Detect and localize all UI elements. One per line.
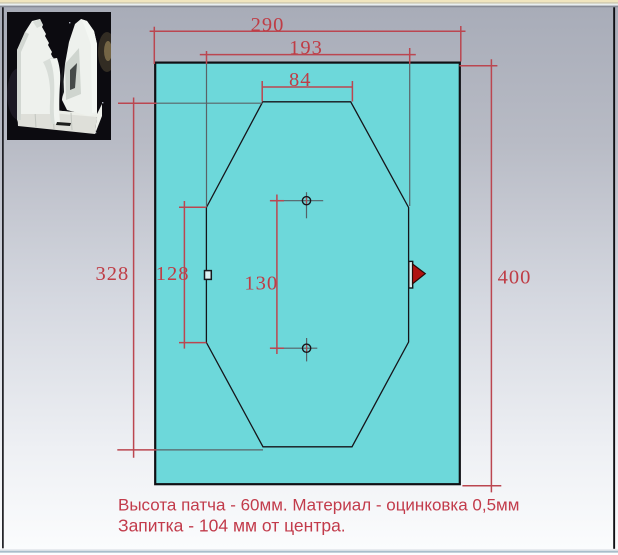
svg-text:400: 400 — [498, 267, 532, 289]
svg-text:84: 84 — [289, 69, 312, 91]
svg-text:193: 193 — [289, 37, 323, 59]
svg-text:130: 130 — [244, 273, 278, 295]
svg-text:128: 128 — [156, 263, 190, 285]
svg-text:290: 290 — [251, 14, 285, 36]
svg-text:Высота патча - 60мм. Материал: Высота патча - 60мм. Материал - оцинковк… — [118, 496, 519, 515]
svg-text:328: 328 — [96, 263, 130, 285]
svg-text:Запитка - 104 мм от центра.: Запитка - 104 мм от центра. — [118, 516, 346, 536]
